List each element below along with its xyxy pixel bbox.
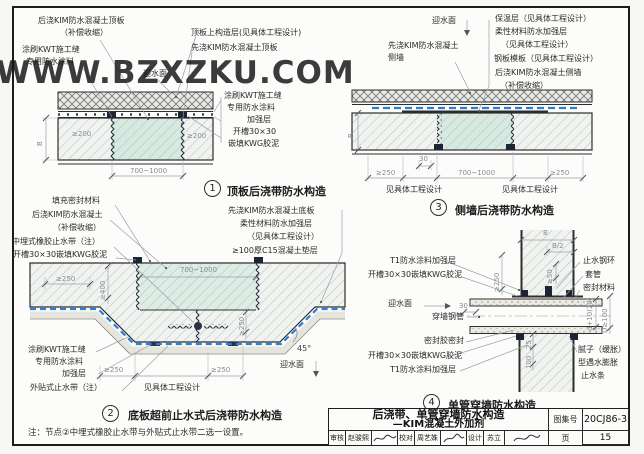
- d1-label-shrinkage: （补偿收缩）: [60, 28, 108, 37]
- d2-label-filler: 填充密封材料: [52, 196, 100, 205]
- d3-label-precast-wall: 先浇KIM防水混凝土: [388, 41, 459, 50]
- sheet-title-line2: —KIM混凝土外加剂: [393, 420, 484, 430]
- d2-dim-400: ≥400: [99, 281, 107, 300]
- proofreader-label: 校对: [398, 431, 415, 445]
- approval-row: 审核 赵骏熙 校对 周艺姝 设计 苏立: [329, 431, 549, 445]
- d2-dim-250-bottom-right: ≥250: [211, 366, 230, 374]
- d1-label-postcast-roof: 后浇KIM防水混凝土顶板: [38, 16, 125, 25]
- d2-dim-span: 700~1000: [180, 266, 217, 274]
- d1-label-precast-roof: 先浇KIM防水混凝土顶板: [191, 43, 278, 52]
- d1-label-kwg-sealant: 嵌填KWG胶泥: [228, 139, 279, 148]
- d3-label-flexible-layer: 柔性材料防水加强层: [495, 27, 567, 36]
- atlas-sheet: 后浇KIM防水混凝土顶板 （补偿收缩） 涂刷KWT施工缝 专用防水涂料 迎水面 …: [0, 0, 644, 454]
- proofreader-signature: [441, 431, 467, 445]
- d2-dim-250-vert: ≥250: [238, 317, 246, 336]
- d4-label-water-face: 迎水面: [388, 299, 412, 308]
- d3-label-side-wall: 侧墙: [388, 53, 404, 62]
- d4-label-seal-material: 密封材料: [583, 283, 615, 292]
- d1-label-kwt-coating-2: 涂刷KWT施工缝: [224, 91, 282, 100]
- d4-dim-100: 100: [525, 356, 533, 369]
- d4-label-putty-1: 腻子（缓胀）: [578, 345, 626, 354]
- atlas-number-label: 图集号: [549, 409, 583, 431]
- d3-dim-250-left: ≥250: [376, 169, 395, 177]
- d2-dim-250-left: ≥250: [56, 275, 75, 283]
- page-label: 页: [549, 431, 583, 445]
- d2-label-embedded-waterstop: 中埋式橡胶止水带（注）: [12, 237, 100, 246]
- d4-label-groove-top: 开槽30×30嵌填KWG胶泥: [368, 270, 462, 279]
- d1-label-roof-construction-layer: 顶板上构造层(见具体工程设计): [191, 28, 301, 37]
- d3-detail-title: 侧墙后浇带防水构造: [455, 202, 554, 218]
- d3-label-postcast-wall: 后浇KIM防水混凝土侧墙: [495, 68, 582, 77]
- d4-label-steel-ring: 止水钢环: [583, 256, 615, 265]
- d1-label-reinforce-layer: 加强层: [247, 115, 271, 124]
- d2-label-cushion: ≥100厚C15混凝土垫层: [232, 246, 318, 255]
- watermark: WWW.BZXZKU.COM: [0, 55, 355, 91]
- d2-label-external-waterstop: 外贴式止水带（注）: [30, 383, 102, 392]
- d3-label-steel-formwork: 钢板模板（见具体工程设计）: [494, 54, 598, 63]
- d3-dim-thickness: B: [347, 133, 355, 138]
- d3-dim-30: 30: [419, 155, 428, 163]
- d1-label-kwt-coating: 涂刷KWT施工缝: [22, 45, 80, 54]
- d3-detail-number: 3: [430, 199, 447, 216]
- d3-label-insulation: 保温层（见具体工程设计）: [495, 14, 591, 23]
- d2-label-groove-kwg: 开槽30×30嵌填KWG胶泥: [13, 250, 107, 259]
- d1-label-waterproof-paint-2: 专用防水涂料: [227, 103, 275, 112]
- d3-label-shrinkage: （补偿收缩）: [500, 81, 548, 90]
- d2-label-shrinkage: （补偿收缩）: [53, 223, 101, 232]
- d1-dim-200-left: ≥200: [72, 130, 91, 138]
- signature-scribble: [373, 433, 397, 444]
- d2-label-flexible-layer: 柔性材料防水加强层: [240, 219, 312, 228]
- atlas-number-value: 20CJ86-3: [583, 409, 629, 431]
- d3-dim-250-right: ≥250: [550, 169, 569, 177]
- d4-dim-250: ≥250: [493, 273, 501, 292]
- d1-dim-200-right: ≥200: [187, 132, 206, 140]
- d4-dim-50: ≥50: [546, 269, 554, 284]
- d4-label-putty-2: 型遇水膨胀: [578, 358, 618, 367]
- d1-detail-number: 1: [204, 180, 221, 197]
- signature-scribble: [512, 433, 542, 444]
- d1-dim-thickness: B: [36, 141, 44, 146]
- d4-label-pipe: 穿墙钢管: [432, 312, 464, 321]
- page-number: 15: [583, 431, 629, 445]
- d2-label-waterproof-paint: 专用防水涂料: [35, 357, 83, 366]
- designer-name: 苏立: [484, 431, 505, 445]
- d1-detail-title: 顶板后浇带防水构造: [227, 183, 326, 199]
- reviewer-label: 审核: [329, 431, 346, 445]
- reviewer-name: 赵骏熙: [346, 431, 372, 445]
- d4-dim-pipe-D: D≥100: [601, 308, 609, 333]
- d2-dim-250-bottom-left: ≥250: [104, 366, 123, 374]
- d4-label-sleeve: 套管: [585, 270, 601, 279]
- d4-dim-pipe-d: d+10(20): [586, 297, 594, 331]
- d4-label-t1-top: T1防水涂料加强层: [390, 256, 456, 265]
- designer-signature: [505, 431, 548, 445]
- d4-dim-25: 25: [525, 340, 533, 349]
- d4-dim-b2: B/2: [552, 242, 564, 250]
- d1-label-groove: 开槽30×30: [233, 127, 276, 136]
- d3-label-see-design-right: 见具体工程设计: [502, 185, 558, 194]
- d4-dim-b: B: [543, 229, 548, 237]
- d2-label-postcast: 后浇KIM防水混凝土: [32, 210, 103, 219]
- d2-label-reinforce-layer: 加强层: [62, 369, 86, 378]
- signature-scribble: [442, 433, 466, 444]
- d2-label-water-face: 迎水面: [280, 360, 304, 369]
- d4-label-putty-3: 止水条: [581, 371, 605, 380]
- d2-label-see-design: （见具体工程设计）: [247, 232, 319, 241]
- d4-label-t1-bottom: T1防水涂料加强层: [390, 365, 456, 374]
- reviewer-signature: [372, 431, 398, 445]
- proofreader-name: 周艺姝: [415, 431, 441, 445]
- d4-label-sealant: 密封胶密封: [424, 336, 464, 345]
- d2-dim-angle: 45°: [297, 344, 311, 353]
- d2-detail-title: 底板超前止水式后浇带防水构造: [128, 407, 282, 423]
- d1-dim-span: 700~1000: [130, 167, 167, 175]
- d3-label-see-design-1: （见具体工程设计）: [501, 40, 573, 49]
- d2-label-precast-base: 先浇KIM防水混凝土底板: [228, 206, 315, 215]
- sheet-title: 后浇带、单管穿墙防水构造 —KIM混凝土外加剂: [329, 409, 549, 431]
- d4-label-groove-bottom: 开槽30×30嵌填KWG胶泥: [368, 351, 462, 360]
- d2-label-kwt-coating: 涂刷KWT施工缝: [28, 345, 86, 354]
- d3-label-water-face: 迎水面: [432, 16, 456, 25]
- d2-label-see-design-bottom: 见具体工程设计: [144, 383, 200, 392]
- d2-detail-number: 2: [102, 405, 119, 422]
- title-block: 后浇带、单管穿墙防水构造 —KIM混凝土外加剂 图集号 20CJ86-3 审核 …: [328, 408, 630, 446]
- sheet-note: 注：节点②中埋式橡胶止水带与外贴式止水带二选一设置。: [28, 426, 248, 438]
- d3-dim-span: 700~1000: [458, 169, 495, 177]
- designer-label: 设计: [467, 431, 484, 445]
- d3-label-see-design-left: 见具体工程设计: [386, 185, 442, 194]
- d4-dim-30: 30: [459, 302, 468, 310]
